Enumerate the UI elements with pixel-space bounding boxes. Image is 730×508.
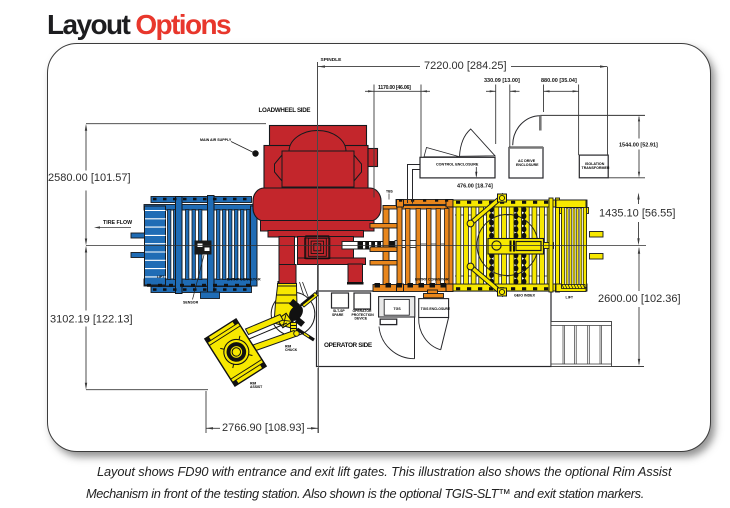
svg-text:CHUCK: CHUCK (285, 348, 298, 352)
svg-text:TIRE FLOW: TIRE FLOW (103, 220, 132, 226)
svg-text:SPINDLE: SPINDLE (321, 57, 343, 63)
svg-text:7220.00 [284.25]: 7220.00 [284.25] (424, 60, 507, 72)
svg-text:ENCLOSURE: ENCLOSURE (516, 163, 539, 167)
svg-text:LIFT: LIFT (566, 296, 574, 300)
svg-text:880.00 [35.04]: 880.00 [35.04] (541, 78, 577, 84)
svg-text:ASSIST: ASSIST (250, 385, 263, 389)
svg-text:SPARE: SPARE (332, 313, 344, 317)
svg-text:GEIO INDEX: GEIO INDEX (514, 294, 536, 298)
svg-text:ENTRY CONVEYOR: ENTRY CONVEYOR (415, 278, 449, 282)
svg-text:LIFT: LIFT (157, 275, 165, 279)
svg-text:TGS: TGS (394, 307, 402, 311)
svg-text:MAIN AIR SUPPLY: MAIN AIR SUPPLY (200, 138, 232, 142)
svg-text:2600.00 [102.36]: 2600.00 [102.36] (598, 293, 681, 305)
svg-text:DEVICE: DEVICE (355, 317, 368, 321)
svg-text:1170.00 [46.06]: 1170.00 [46.06] (378, 85, 411, 91)
svg-text:3102.19 [122.13]: 3102.19 [122.13] (50, 314, 133, 326)
svg-text:1544.00 [52.91]: 1544.00 [52.91] (619, 143, 658, 149)
svg-text:2580.00 [101.57]: 2580.00 [101.57] (48, 172, 131, 184)
svg-text:ENTRY CONVEYOR: ENTRY CONVEYOR (227, 278, 261, 282)
svg-text:TBS: TBS (386, 190, 394, 194)
svg-text:TGIS ENCLOSURE: TGIS ENCLOSURE (421, 307, 451, 311)
svg-text:476.00 [18.74]: 476.00 [18.74] (457, 184, 493, 190)
svg-text:OPERATOR SIDE: OPERATOR SIDE (324, 342, 373, 349)
svg-text:TRANSFORMER: TRANSFORMER (582, 166, 610, 170)
svg-text:2766.90 [108.93]: 2766.90 [108.93] (222, 422, 305, 434)
svg-text:SENSOR: SENSOR (183, 301, 199, 305)
svg-text:330.09 [13.00]: 330.09 [13.00] (484, 78, 520, 84)
svg-text:LOADWHEEL SIDE: LOADWHEEL SIDE (259, 107, 311, 114)
svg-text:CONTROL ENCLOSURE: CONTROL ENCLOSURE (436, 163, 479, 167)
svg-text:1435.10 [56.55]: 1435.10 [56.55] (599, 208, 675, 220)
